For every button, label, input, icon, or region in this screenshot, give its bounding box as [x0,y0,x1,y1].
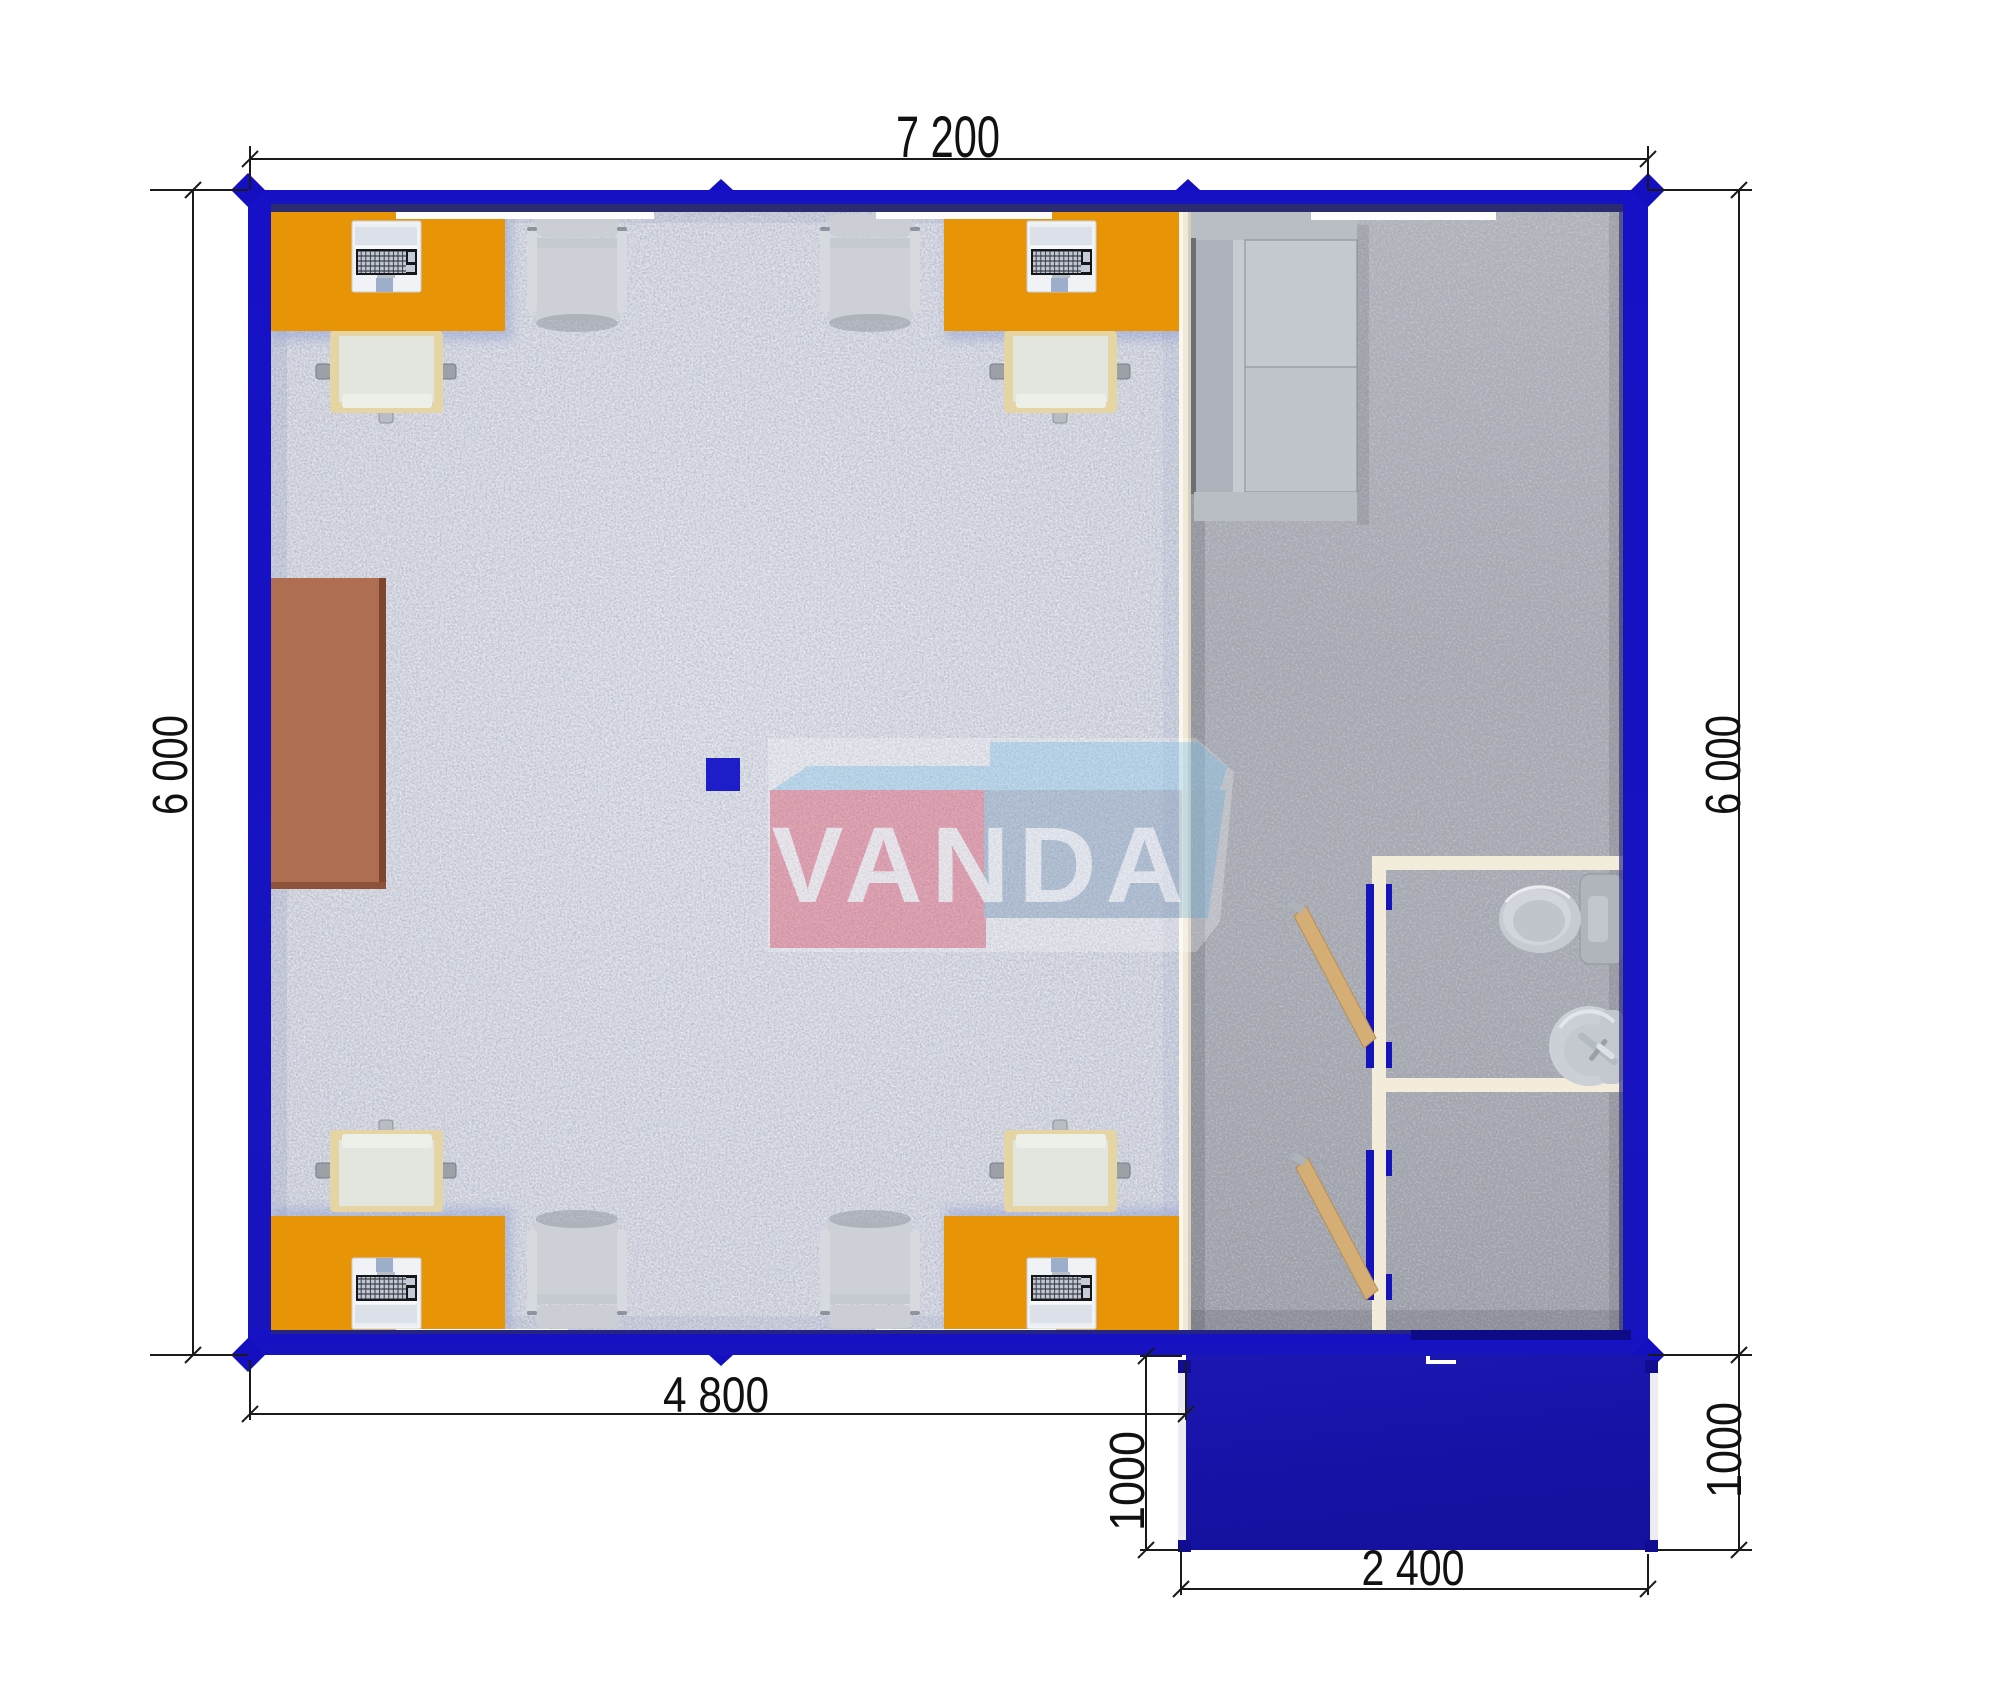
svg-text:VANDA: VANDA [772,804,1193,925]
svg-text:7 200: 7 200 [896,105,1000,170]
svg-text:1000: 1000 [1698,1402,1752,1498]
svg-text:6 000: 6 000 [144,715,198,815]
svg-text:1000: 1000 [1101,1431,1155,1531]
svg-text:6 000: 6 000 [1697,715,1751,815]
svg-text:2 400: 2 400 [1362,1540,1465,1596]
svg-text:4 800: 4 800 [663,1367,769,1423]
